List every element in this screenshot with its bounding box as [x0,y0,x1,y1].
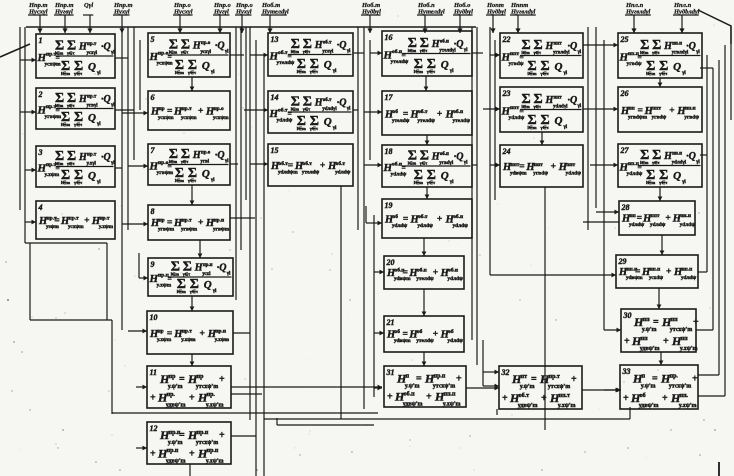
svg-text:уdлdψ: уdлdψ [391,172,407,178]
svg-text:Q: Q [88,112,96,124]
svg-text:удвψ'm: удвψ'm [518,403,538,409]
svg-text:пп.п: пп.п [685,106,696,112]
svg-text:·Q: ·Q [215,150,225,161]
svg-text:об.п: об.п [440,152,449,157]
svg-text:об: об [393,108,399,115]
svg-text:угвdγl: угвdγl [439,161,454,166]
svg-text:у.хψm: у.хψm [157,283,172,289]
svg-text:l∈m: l∈m [175,178,184,183]
svg-text:пп.т: пп.т [559,393,570,399]
svg-text:=: = [402,163,406,172]
svg-text:l∈m: l∈m [291,106,300,111]
svg-text:=: = [403,109,408,119]
svg-text:у.хψ'm: у.хψ'm [558,403,576,409]
svg-text:+: + [663,336,669,347]
svg-text:Q: Q [441,170,449,182]
svg-text:l∈m: l∈m [177,289,186,294]
svg-text:l∈m: l∈m [414,180,423,185]
svg-text:γ∈τ: γ∈τ [309,126,319,131]
svg-text:пп: пп [671,317,678,323]
svg-text:пр.п: пр.п [197,430,209,436]
svg-text:+: + [219,374,225,385]
svg-text:l∈m: l∈m [171,271,180,276]
svg-text:угвdψ: угвdψ [533,171,548,177]
svg-text:пр.п: пр.п [434,373,446,379]
svg-text:пп.п: пп.п [672,42,682,47]
svg-text:28: 28 [621,203,630,212]
svg-text:γ∈τ: γ∈τ [658,71,668,76]
svg-text:γ∈τ: γ∈τ [73,180,83,185]
svg-text:угвdψ: угвdψ [627,61,642,67]
svg-text:+: + [219,430,225,441]
svg-text:Q: Q [554,61,562,73]
svg-text:γ∈τ: γ∈τ [302,106,311,111]
svg-text:+: + [666,267,671,277]
svg-text:уdлdψ: уdлdψ [417,223,433,229]
svg-text:γ∈τ: γ∈τ [426,69,436,74]
svg-text:23: 23 [502,89,511,98]
svg-text:об.п: об.п [404,390,416,397]
svg-text:19: 19 [385,201,393,210]
svg-text:+: + [624,336,630,347]
svg-text:γ∈τ: γ∈τ [189,289,199,294]
svg-text:утелdψ: утелdψ [302,170,320,176]
svg-text:γl: γl [210,178,215,183]
svg-text:5: 5 [151,35,155,44]
svg-text:у.хψm: у.хψm [181,337,196,343]
svg-text:усхγl: усхγl [200,50,211,55]
svg-text:+: + [198,106,203,116]
svg-text:пп.п: пп.п [680,213,691,219]
svg-text:угвdψ: угвdψ [684,114,699,120]
svg-text:удвψ'm: удвψ'm [639,403,659,409]
svg-text:γl: γl [576,50,581,55]
svg-text:пр.о: пр.о [214,106,224,112]
svg-text:20: 20 [386,258,395,267]
svg-text:=: = [635,267,640,277]
svg-text:уdлdψ: уdлdψ [681,275,697,281]
svg-text:+: + [433,330,438,340]
svg-text:γ∈τ: γ∈τ [66,50,75,55]
svg-text:γ∈τ: γ∈τ [309,69,319,74]
svg-text:об.т: об.т [323,98,332,103]
svg-text:4: 4 [38,203,43,212]
svg-text:γl: γl [449,69,454,74]
svg-text:у.хψm: у.хψm [215,337,230,343]
svg-text:Q: Q [202,168,210,180]
svg-text:у.хψ'm: у.хψ'm [206,402,224,408]
svg-text:+: + [437,214,442,224]
svg-text:l∈m: l∈m [61,180,70,185]
svg-text:уdлdψ: уdлdψ [447,338,463,344]
svg-text:+: + [198,218,203,228]
svg-text:пр: пр [169,374,176,380]
svg-text:пр.т: пр.т [182,106,192,112]
svg-text:=: = [403,330,408,340]
svg-text:γl: γl [226,272,231,277]
svg-text:γ∈τ: γ∈τ [187,178,197,183]
svg-text:γl: γl [346,107,351,112]
svg-text:γl: γl [332,126,337,131]
svg-text:Q: Q [673,61,681,73]
svg-text:пп.: пп. [680,393,689,399]
svg-text:18: 18 [385,147,393,156]
svg-text:l∈m: l∈m [527,71,536,76]
svg-text:·Q: ·Q [686,41,696,52]
svg-text:=: = [179,374,185,385]
svg-text:30: 30 [623,311,632,320]
svg-text:усхψm: усхψm [157,61,173,67]
svg-text:l∈m: l∈m [414,69,423,74]
svg-text:γl: γl [695,50,700,55]
svg-text:уdлdψ: уdлdψ [509,115,525,121]
svg-text:уdлdψ: уdлdψ [627,171,643,177]
svg-text:+: + [502,393,508,404]
svg-text:пп.п: пп.п [682,266,693,272]
svg-text:пр.: пр. [670,374,679,380]
svg-text:29: 29 [618,257,627,266]
svg-text:33: 33 [622,367,631,376]
svg-text:утсхψ'm: утсхψ'm [669,384,691,390]
svg-text:10: 10 [150,313,158,322]
svg-text:уdлdψ: уdлdψ [680,222,696,228]
svg-text:пр.т: пр.т [182,328,192,334]
svg-text:у.хψm: у.хψm [45,172,60,178]
svg-text:утелdψ: утелdψ [417,118,435,124]
svg-text:+: + [571,374,577,385]
svg-text:пп.п: пп.п [650,266,661,272]
svg-text:+: + [662,393,668,404]
svg-text:об.п: об.п [453,213,463,220]
svg-text:·Q: ·Q [337,40,347,51]
svg-text:·Q: ·Q [215,41,225,52]
svg-text:·Q: ·Q [686,151,696,162]
svg-text:13: 13 [271,35,279,44]
svg-text:=: = [402,51,406,60]
svg-text:угвψm: угвψm [45,114,62,120]
svg-text:=: = [403,214,408,224]
svg-text:Qγl: Qγl [84,2,93,9]
svg-text:l∈m: l∈m [169,49,178,54]
svg-text:об.п: об.п [440,40,449,45]
svg-text:об.т: об.т [418,108,428,115]
svg-text:+: + [189,392,195,403]
svg-text:утсхψ'm: утсхψ'm [548,384,570,390]
svg-text:утелdψ: утелdψ [391,59,409,65]
svg-text:γ∈τ: γ∈τ [73,71,83,76]
svg-text:l∈m: l∈m [55,161,64,166]
svg-text:ппт: ппт [553,42,562,47]
svg-text:=: = [637,106,642,116]
svg-text:l∈m: l∈m [521,104,530,109]
svg-text:пр: пр [158,328,164,334]
svg-text:=: = [653,317,659,328]
svg-text:γl: γl [96,122,101,127]
svg-text:γ∈τ: γ∈τ [539,71,549,76]
svg-text:l∈m: l∈m [640,50,649,55]
svg-text:удвψ'm: удвψ'm [403,401,423,407]
svg-text:у.хψ'm: у.хψ'm [679,403,697,409]
svg-text:ппт: ппт [652,106,661,112]
svg-text:8: 8 [151,207,155,216]
svg-text:угвψm: угвψm [213,226,230,232]
svg-text:ппт: ппт [553,96,562,101]
svg-text:усхγl: усхγl [86,51,97,56]
svg-text:ппт: ппт [534,162,543,168]
svg-text:=: = [288,161,293,171]
svg-text:γl: γl [695,160,700,165]
svg-text:об: об [395,328,401,335]
svg-text:+: + [387,391,393,402]
svg-text:у.хψ'm: у.хψ'm [680,346,698,352]
svg-text:γl: γl [110,161,115,166]
svg-text:22: 22 [502,35,511,44]
svg-text:γl: γl [224,50,229,55]
svg-text:пр: пр [159,106,165,112]
svg-text:пт: пт [521,374,527,380]
svg-text:пр.п: пр.п [214,218,225,224]
svg-text:γ∈τ: γ∈τ [66,103,75,108]
svg-text:γl: γl [110,103,115,108]
svg-text:γl: γl [463,48,468,53]
svg-text:об: об [417,328,423,335]
svg-text:γl: γl [681,71,686,76]
svg-text:+: + [199,329,204,339]
svg-text:утсхψ'm: утсхψ'm [670,327,692,333]
svg-text:14: 14 [271,93,279,102]
svg-text:24: 24 [502,147,511,156]
svg-text:l∈m: l∈m [297,126,306,131]
svg-text:=: = [531,374,537,385]
svg-text:γ∈τ: γ∈τ [658,180,668,185]
svg-text:γ∈τ: γ∈τ [651,50,660,55]
svg-text:+: + [426,391,432,402]
svg-text:уdлdψ: уdлdψ [452,223,468,229]
svg-text:утелdψ: утелdψ [277,60,295,66]
svg-text:26: 26 [620,89,629,98]
svg-text:+: + [551,162,556,172]
svg-text:+: + [623,393,629,404]
svg-text:·Q: ·Q [101,152,111,163]
svg-text:γl: γl [449,180,454,185]
svg-text:+: + [189,448,195,459]
svg-text:пп.п: пп.п [444,391,456,397]
svg-text:γ∈τ: γ∈τ [187,70,197,75]
svg-text:=: = [54,216,59,226]
svg-text:γl: γl [346,49,351,54]
svg-text:l∈m: l∈m [646,71,655,76]
svg-text:+: + [150,448,156,459]
svg-text:пр.т: пр.т [99,215,109,221]
svg-text:об: об [393,213,399,220]
svg-text:усхψm: усхψm [213,115,229,121]
svg-text:Q: Q [673,170,681,182]
svg-text:+: + [320,161,325,171]
svg-text:=: = [652,374,658,385]
svg-text:+: + [150,392,156,403]
svg-text:γl: γl [96,180,101,185]
svg-text:l∈m: l∈m [55,103,64,108]
svg-text:+: + [665,213,670,223]
svg-text:пр.т: пр.т [87,95,97,100]
svg-text:Q: Q [324,116,332,128]
svg-text:утсхψ'm: утсхψ'm [196,384,218,390]
svg-text:об.т: об.т [278,49,288,56]
svg-text:удвψ'm: удвψ'm [166,402,186,408]
svg-text:пп: пп [643,317,650,323]
svg-text:l∈m: l∈m [408,160,417,165]
svg-text:+: + [84,216,89,226]
svg-text:об.т: об.т [303,160,313,167]
svg-text:угвψm: угвψm [181,226,198,232]
svg-text:l∈m: l∈m [640,160,649,165]
svg-text:15: 15 [271,146,279,155]
svg-text:=: = [167,106,172,116]
svg-text:об: об [448,328,454,335]
svg-text:у.хψ'm: у.хψ'm [443,401,461,407]
svg-text:об: об [640,392,646,399]
svg-text:пп: пп [629,106,635,112]
svg-text:=: = [179,430,185,441]
svg-text:l∈m: l∈m [646,180,655,185]
svg-text:Q: Q [441,59,449,71]
svg-text:γl: γl [110,51,115,56]
svg-text:γl: γl [576,104,581,109]
svg-text:об.п: об.п [417,266,427,273]
svg-text:γl: γl [332,69,337,74]
svg-text:=: = [403,268,408,278]
svg-text:Q: Q [88,61,96,73]
svg-text:об.т: об.т [519,392,530,399]
svg-text:·Q: ·Q [101,42,111,53]
svg-text:об.т: об.т [323,41,332,46]
svg-text:пр: пр [197,374,204,380]
svg-text:пр.п: пр.п [167,448,179,454]
svg-text:l∈m: l∈m [408,48,417,53]
svg-text:16: 16 [385,33,393,42]
svg-text:·Q: ·Q [101,94,111,105]
svg-text:угвγl: угвγl [86,104,98,109]
svg-text:+: + [456,373,462,384]
svg-text:γ∈τ: γ∈τ [66,161,75,166]
svg-text:γl: γl [210,70,215,75]
svg-text:ппт: ппт [651,213,660,219]
svg-text:угвψm: угвψm [157,170,174,176]
svg-text:γl: γl [212,289,217,294]
svg-text:об.п: об.п [448,266,458,273]
svg-text:уdлdψ: уdлdψ [277,118,293,124]
svg-text:·Q: ·Q [454,152,464,163]
svg-text:9: 9 [151,260,155,269]
svg-text:+: + [437,109,442,119]
svg-text:уdлdψ: уdлdψ [566,171,582,177]
svg-text:l∈m: l∈m [527,125,536,130]
svg-text:ппт: ппт [566,162,575,168]
svg-text:уdлdγl: уdлdγl [553,105,568,110]
svg-text:пп: пп [641,336,648,342]
svg-text:усхl: усхl [202,272,211,277]
svg-text:γ∈τ: γ∈τ [73,122,83,127]
svg-text:ппт: ппт [510,105,519,111]
svg-text:·Q: ·Q [567,41,577,52]
svg-text:l∈m: l∈m [521,50,530,55]
svg-text:γ∈τ: γ∈τ [180,159,189,164]
svg-text:усхψm: усхψm [181,115,197,121]
svg-text:17: 17 [385,93,394,102]
svg-text:=: = [167,218,172,228]
svg-text:пр.п: пр.п [215,328,226,334]
svg-text:·Q: ·Q [217,263,227,274]
svg-text:Q: Q [204,279,212,291]
svg-text:l∈m: l∈m [297,69,306,74]
svg-text:11: 11 [150,368,158,377]
svg-text:γl: γl [96,71,101,76]
svg-text:пр.т: пр.т [549,374,560,380]
svg-text:уdлdψ: уdлdψ [447,276,463,282]
svg-text:6: 6 [151,93,155,102]
svg-text:γl: γl [681,180,686,185]
svg-text:ппт: ппт [510,51,519,57]
svg-text:γ∈τ: γ∈τ [532,50,541,55]
svg-text:Q: Q [202,60,210,72]
svg-text:γ∈τ: γ∈τ [182,271,191,276]
svg-text:пр.т: пр.т [182,218,192,224]
svg-text:уdлdγl: уdлdγl [322,107,337,112]
svg-text:γl: γl [463,161,468,166]
svg-text:уdлdψ: уdлdψ [335,170,351,176]
svg-text:утсхψ'm: утсхψ'm [196,440,218,446]
svg-text:=: = [167,329,172,339]
svg-text:об.п: об.п [453,108,463,115]
svg-text:+: + [693,317,699,328]
svg-text:γl: γl [562,71,567,76]
svg-text:12: 12 [150,424,158,433]
svg-text:усхψm: усхψm [45,62,61,68]
svg-text:l∈m: l∈m [291,49,300,54]
svg-text:пр.о: пр.о [201,41,211,46]
svg-text:об.т: об.т [336,160,346,167]
svg-text:усхψm: усхψm [68,224,84,230]
svg-text:l∈m: l∈m [61,71,70,76]
svg-text:γl: γl [224,159,229,164]
svg-text:пр.: пр. [207,392,216,398]
svg-text:31: 31 [386,368,395,377]
svg-text:γ∈τ: γ∈τ [419,48,428,53]
svg-text:пп: пп [681,336,688,342]
svg-text:пр.о: пр.о [201,151,211,156]
svg-text:l∈m: l∈m [61,122,70,127]
svg-text:пр.п: пр.п [207,448,219,454]
svg-text:γ∈τ: γ∈τ [426,180,436,185]
svg-text:п: п [642,374,646,380]
svg-text:уdлdγl: уdлdγl [672,161,687,166]
svg-text:γ∈τ: γ∈τ [180,49,189,54]
svg-text:+: + [433,268,438,278]
svg-text:угвdψ: угвdψ [509,61,524,67]
svg-text:·Q: ·Q [567,95,577,106]
svg-text:3: 3 [38,148,43,157]
svg-text:1: 1 [39,36,43,45]
svg-text:удвψ'm: удвψ'm [166,458,186,464]
svg-text:=: = [519,162,524,172]
svg-text:утелdψ: утелdψ [416,276,434,282]
svg-text:Q: Q [88,170,96,182]
svg-text:у.хψ'm: у.хψ'm [206,458,224,464]
svg-text:=: = [637,213,642,223]
svg-text:пр.т: пр.т [69,215,79,221]
svg-text:25: 25 [620,35,629,44]
svg-text:Q: Q [324,59,332,71]
